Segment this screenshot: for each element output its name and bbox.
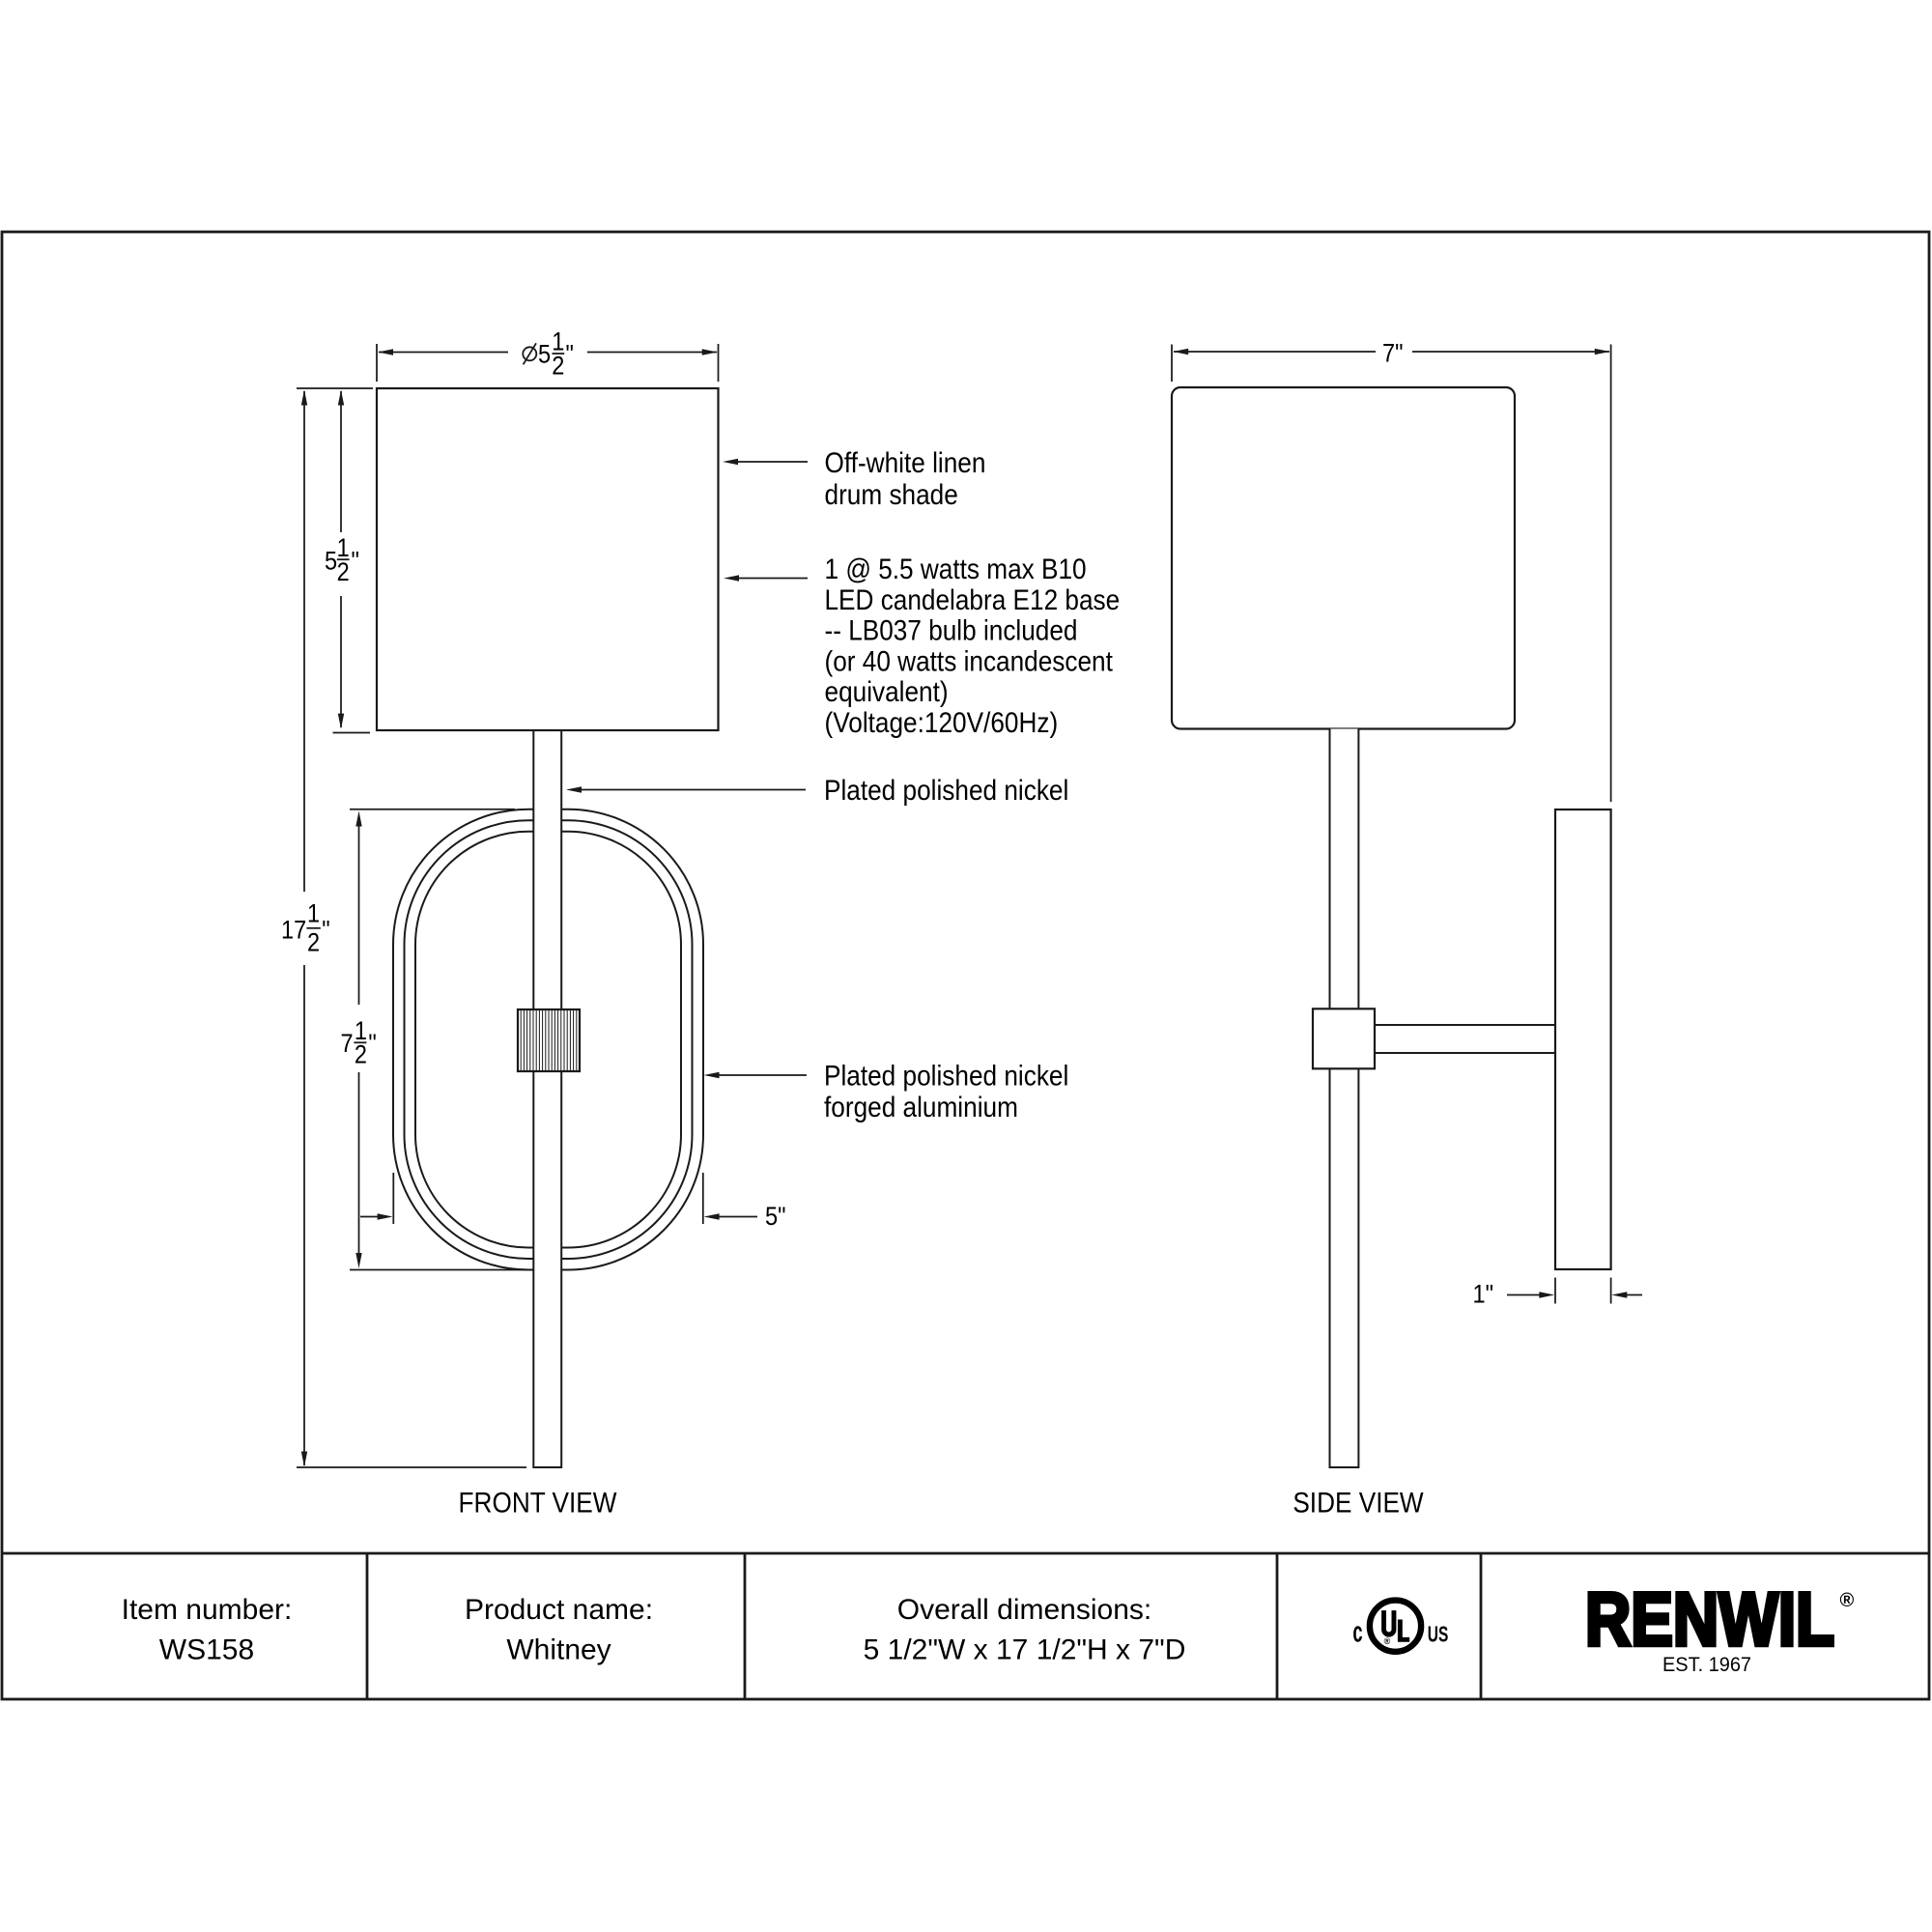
svg-text:5: 5 xyxy=(538,340,551,369)
svg-text:EST. 1967: EST. 1967 xyxy=(1662,1654,1751,1676)
svg-text:drum shade: drum shade xyxy=(825,479,958,511)
svg-text:RENWIL: RENWIL xyxy=(1585,1577,1834,1662)
svg-text:forged aluminium: forged aluminium xyxy=(824,1092,1018,1123)
svg-text:2: 2 xyxy=(552,352,564,381)
svg-text:Whitney: Whitney xyxy=(506,1634,611,1666)
svg-text:Plated polished nickel: Plated polished nickel xyxy=(824,775,1068,807)
svg-text:7: 7 xyxy=(341,1029,354,1058)
svg-text:c: c xyxy=(1352,1614,1362,1648)
svg-text:®: ® xyxy=(1384,1636,1391,1646)
svg-text:Overall dimensions:: Overall dimensions: xyxy=(897,1594,1151,1626)
svg-text:": " xyxy=(352,547,359,576)
svg-text:17: 17 xyxy=(281,916,306,945)
svg-text:®: ® xyxy=(1840,1590,1855,1611)
svg-text:-- LB037 bulb included: -- LB037 bulb included xyxy=(825,615,1078,647)
svg-text:2: 2 xyxy=(355,1040,367,1069)
svg-text:2: 2 xyxy=(337,557,350,586)
svg-text:(or 40 watts incandescent: (or 40 watts incandescent xyxy=(825,645,1114,677)
svg-text:WS158: WS158 xyxy=(159,1634,254,1666)
svg-text:Item number:: Item number: xyxy=(122,1594,293,1626)
svg-text:1 @ 5.5 watts max B10: 1 @ 5.5 watts max B10 xyxy=(825,554,1087,585)
svg-text:5 1/2"W x 17 1/2"H x 7"D: 5 1/2"W x 17 1/2"H x 7"D xyxy=(864,1634,1186,1666)
svg-text:5": 5" xyxy=(765,1202,786,1231)
svg-text:7": 7" xyxy=(1382,339,1404,368)
svg-text:Plated polished nickel: Plated polished nickel xyxy=(824,1061,1068,1093)
svg-text:FRONT VIEW: FRONT VIEW xyxy=(459,1488,617,1520)
svg-text:5: 5 xyxy=(325,547,337,576)
svg-text:Off-white linen: Off-white linen xyxy=(825,447,986,479)
svg-text:": " xyxy=(368,1029,376,1058)
svg-text:": " xyxy=(322,916,329,945)
svg-text:US: US xyxy=(1428,1622,1449,1647)
svg-text:LED candelabra E12 base: LED candelabra E12 base xyxy=(825,584,1121,616)
svg-text:1": 1" xyxy=(1473,1280,1494,1309)
svg-text:equivalent): equivalent) xyxy=(825,676,949,708)
svg-text:1: 1 xyxy=(307,899,320,928)
svg-text:2: 2 xyxy=(307,928,320,957)
svg-text:": " xyxy=(566,340,574,369)
svg-text:SIDE VIEW: SIDE VIEW xyxy=(1293,1488,1424,1520)
svg-text:(Voltage:120V/60Hz): (Voltage:120V/60Hz) xyxy=(825,707,1059,739)
svg-text:Product name:: Product name: xyxy=(465,1594,653,1626)
